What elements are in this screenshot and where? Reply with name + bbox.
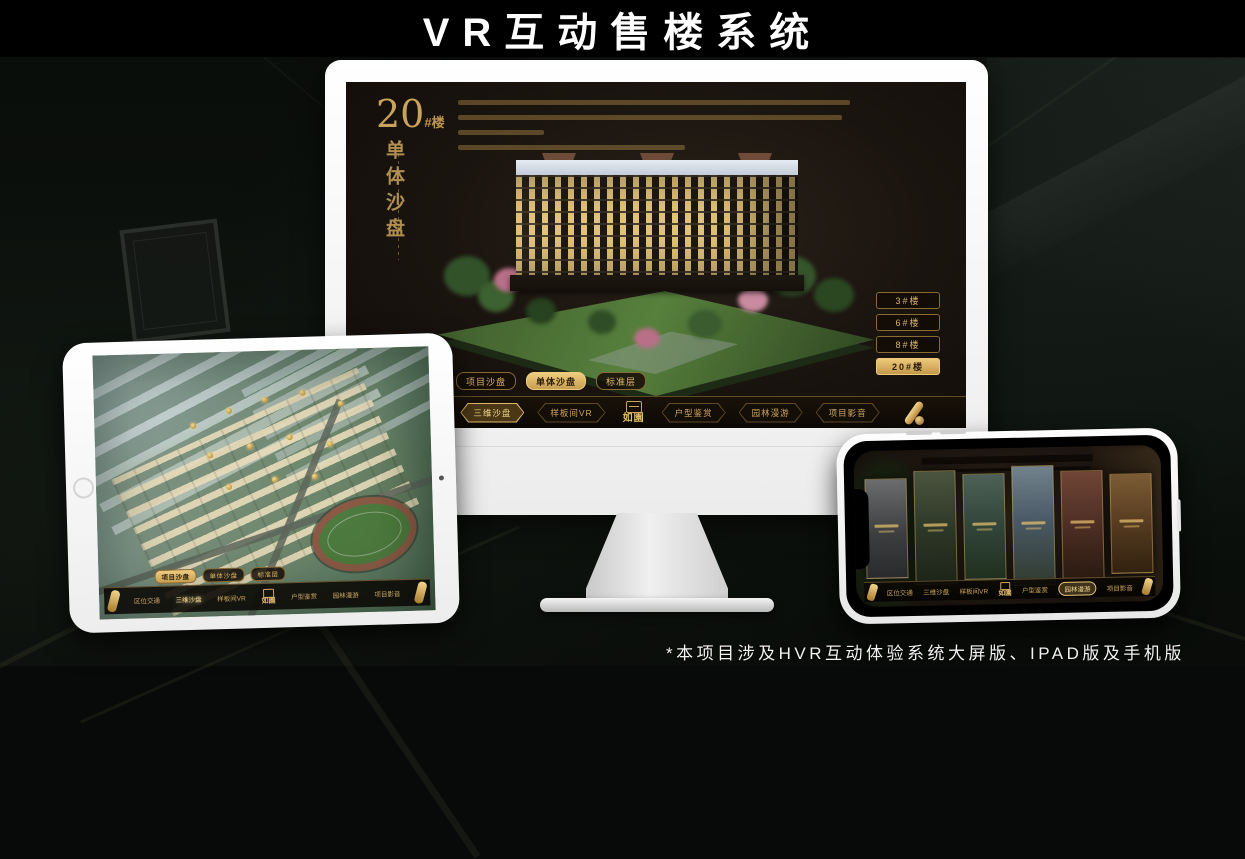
nav-item-project-media[interactable]: 项目影音 [1107,582,1133,593]
tab-project-sandbox[interactable]: 项目沙盘 [456,372,516,390]
nav-item-garden-tour[interactable]: 园林漫游 [1058,581,1096,596]
scene-gallery [864,461,1154,591]
unit-title-block: 20#楼 单体沙盘 [376,94,445,270]
scroll-menu-icon[interactable] [899,400,929,426]
text-line [458,145,685,150]
building-3d-viewport[interactable] [438,160,874,400]
text-line [458,115,842,120]
description-paragraph [458,100,850,160]
brand-logo: 如園 [998,582,1011,597]
brand-logo: 如園 [623,401,645,425]
nav-item-showroom-vr[interactable]: 样板间VR [537,403,605,423]
phone-device: 区位交通 三维沙盘 样板间VR 如園 户型鉴赏 园林漫游 项目影音 [836,427,1181,624]
section-title-vertical: 单体沙盘 [380,140,407,270]
brand-logo: 如園 [261,588,275,605]
building-model [516,160,798,292]
sandbox-tabs: 项目沙盘 单体沙盘 标准层 [456,372,646,390]
brand-logo-text: 如園 [623,413,645,425]
nav-item-location-traffic[interactable]: 区位交通 [887,587,913,598]
volume-button [906,431,932,436]
card-caption [927,529,943,531]
building-base [510,275,804,291]
phone-notch [853,489,869,569]
nav-item-showroom-vr[interactable]: 样板间VR [960,585,989,596]
floor-button-20[interactable]: 20#楼 [876,358,940,375]
seal-icon [626,401,642,413]
scroll-end-icon [1141,577,1154,596]
title-bar: VR互动售楼系统 [0,0,1245,57]
unit-suffix: #楼 [424,115,444,130]
flower-shrub [634,328,660,348]
card-caption [1021,521,1045,525]
card-caption [1119,519,1143,523]
scroll-end [915,416,924,425]
nav-item-project-media[interactable]: 项目影音 [816,403,880,423]
scene-card-building[interactable] [1011,465,1056,586]
nav-item-3d-sandbox[interactable]: 三维沙盘 [460,403,524,423]
title-divider [398,140,399,260]
nav-item-location-traffic[interactable]: 区位交通 [134,595,160,606]
nav-item-label: 项目影音 [817,404,879,422]
seal-icon [263,588,274,597]
footnote: *本项目涉及HVR互动体验系统大屏版、IPAD版及手机版 [666,639,1185,664]
scene-card-lounge[interactable] [1109,473,1153,574]
volume-button [940,430,966,435]
scroll-end-icon [107,589,121,613]
card-caption [923,523,947,527]
tablet-device: 项目沙盘 单体沙盘 标准层 区位交通 三维沙盘 样板间VR 如園 户型鉴赏 园林… [62,333,460,634]
card-caption [874,524,898,528]
tab-single-sandbox[interactable]: 单体沙盘 [202,567,244,582]
floor-button-8[interactable]: 8#楼 [876,336,940,353]
floor-button-3[interactable]: 3#楼 [876,292,940,309]
tab-project-sandbox[interactable]: 项目沙盘 [154,569,196,584]
scroll-end-icon [866,583,879,602]
camera-icon [439,475,444,480]
page-title: VR互动售楼系统 [423,0,823,58]
roof-band [516,160,798,175]
scroll-end-icon [413,581,427,605]
text-line [458,100,850,105]
scene-card-interior[interactable] [864,478,908,579]
nav-item-3d-sandbox[interactable]: 三维沙盘 [923,586,949,597]
building-facade-windows [516,175,798,275]
text-line [458,130,544,135]
nav-item-label: 样板间VR [538,404,604,422]
nav-item-label: 户型鉴赏 [663,404,725,422]
nav-item-floorplan[interactable]: 户型鉴赏 [1022,584,1048,595]
card-caption [1025,527,1041,529]
unit-number: 20 [376,92,424,136]
tab-standard-floor[interactable]: 标准层 [596,372,646,390]
scene-card-garden[interactable] [962,473,1006,580]
brand-logo-text: 如園 [999,590,1012,597]
card-caption [1074,526,1090,528]
card-caption [878,530,894,532]
tablet-screen: 项目沙盘 单体沙盘 标准层 区位交通 三维沙盘 样板间VR 如園 户型鉴赏 园林… [92,346,435,619]
nav-item-garden-tour[interactable]: 园林漫游 [333,589,359,600]
tree [526,298,556,324]
tree [688,310,722,338]
phone-bezel: 区位交通 三维沙盘 样板间VR 如園 户型鉴赏 园林漫游 项目影音 [843,435,1174,618]
phone-screen: 区位交通 三维沙盘 样板间VR 如園 户型鉴赏 园林漫游 项目影音 [853,445,1163,607]
card-caption [972,522,996,526]
card-caption [976,528,992,530]
tab-single-sandbox[interactable]: 单体沙盘 [526,372,586,390]
card-caption [1070,520,1094,524]
seal-icon [1000,582,1010,590]
nav-item-label: 园林漫游 [740,404,802,422]
brand-logo-text: 如園 [261,597,275,605]
scene-card-autumn[interactable] [1060,470,1104,579]
certificate-inner-border [133,232,217,330]
certificate-frame [119,218,230,343]
power-button [1176,500,1181,532]
card-caption [1123,525,1139,527]
floor-button-6[interactable]: 6#楼 [876,314,940,331]
floor-button-group: 3#楼 6#楼 8#楼 20#楼 [876,292,940,375]
nav-item-project-media[interactable]: 项目影音 [374,588,400,599]
nav-item-label: 三维沙盘 [461,404,523,422]
monitor-stand-base [540,598,774,612]
tree [588,310,616,334]
nav-item-showroom-vr[interactable]: 样板间VR [217,592,246,603]
nav-item-3d-sandbox[interactable]: 三维沙盘 [175,594,201,605]
nav-item-floorplan[interactable]: 户型鉴赏 [662,403,726,423]
tree [814,278,854,312]
scene-card-courtyard[interactable] [913,470,957,585]
nav-item-garden-tour[interactable]: 园林漫游 [739,403,803,423]
nav-item-floorplan[interactable]: 户型鉴赏 [291,590,317,601]
tab-standard-floor[interactable]: 标准层 [250,566,285,581]
home-button[interactable] [73,477,95,499]
